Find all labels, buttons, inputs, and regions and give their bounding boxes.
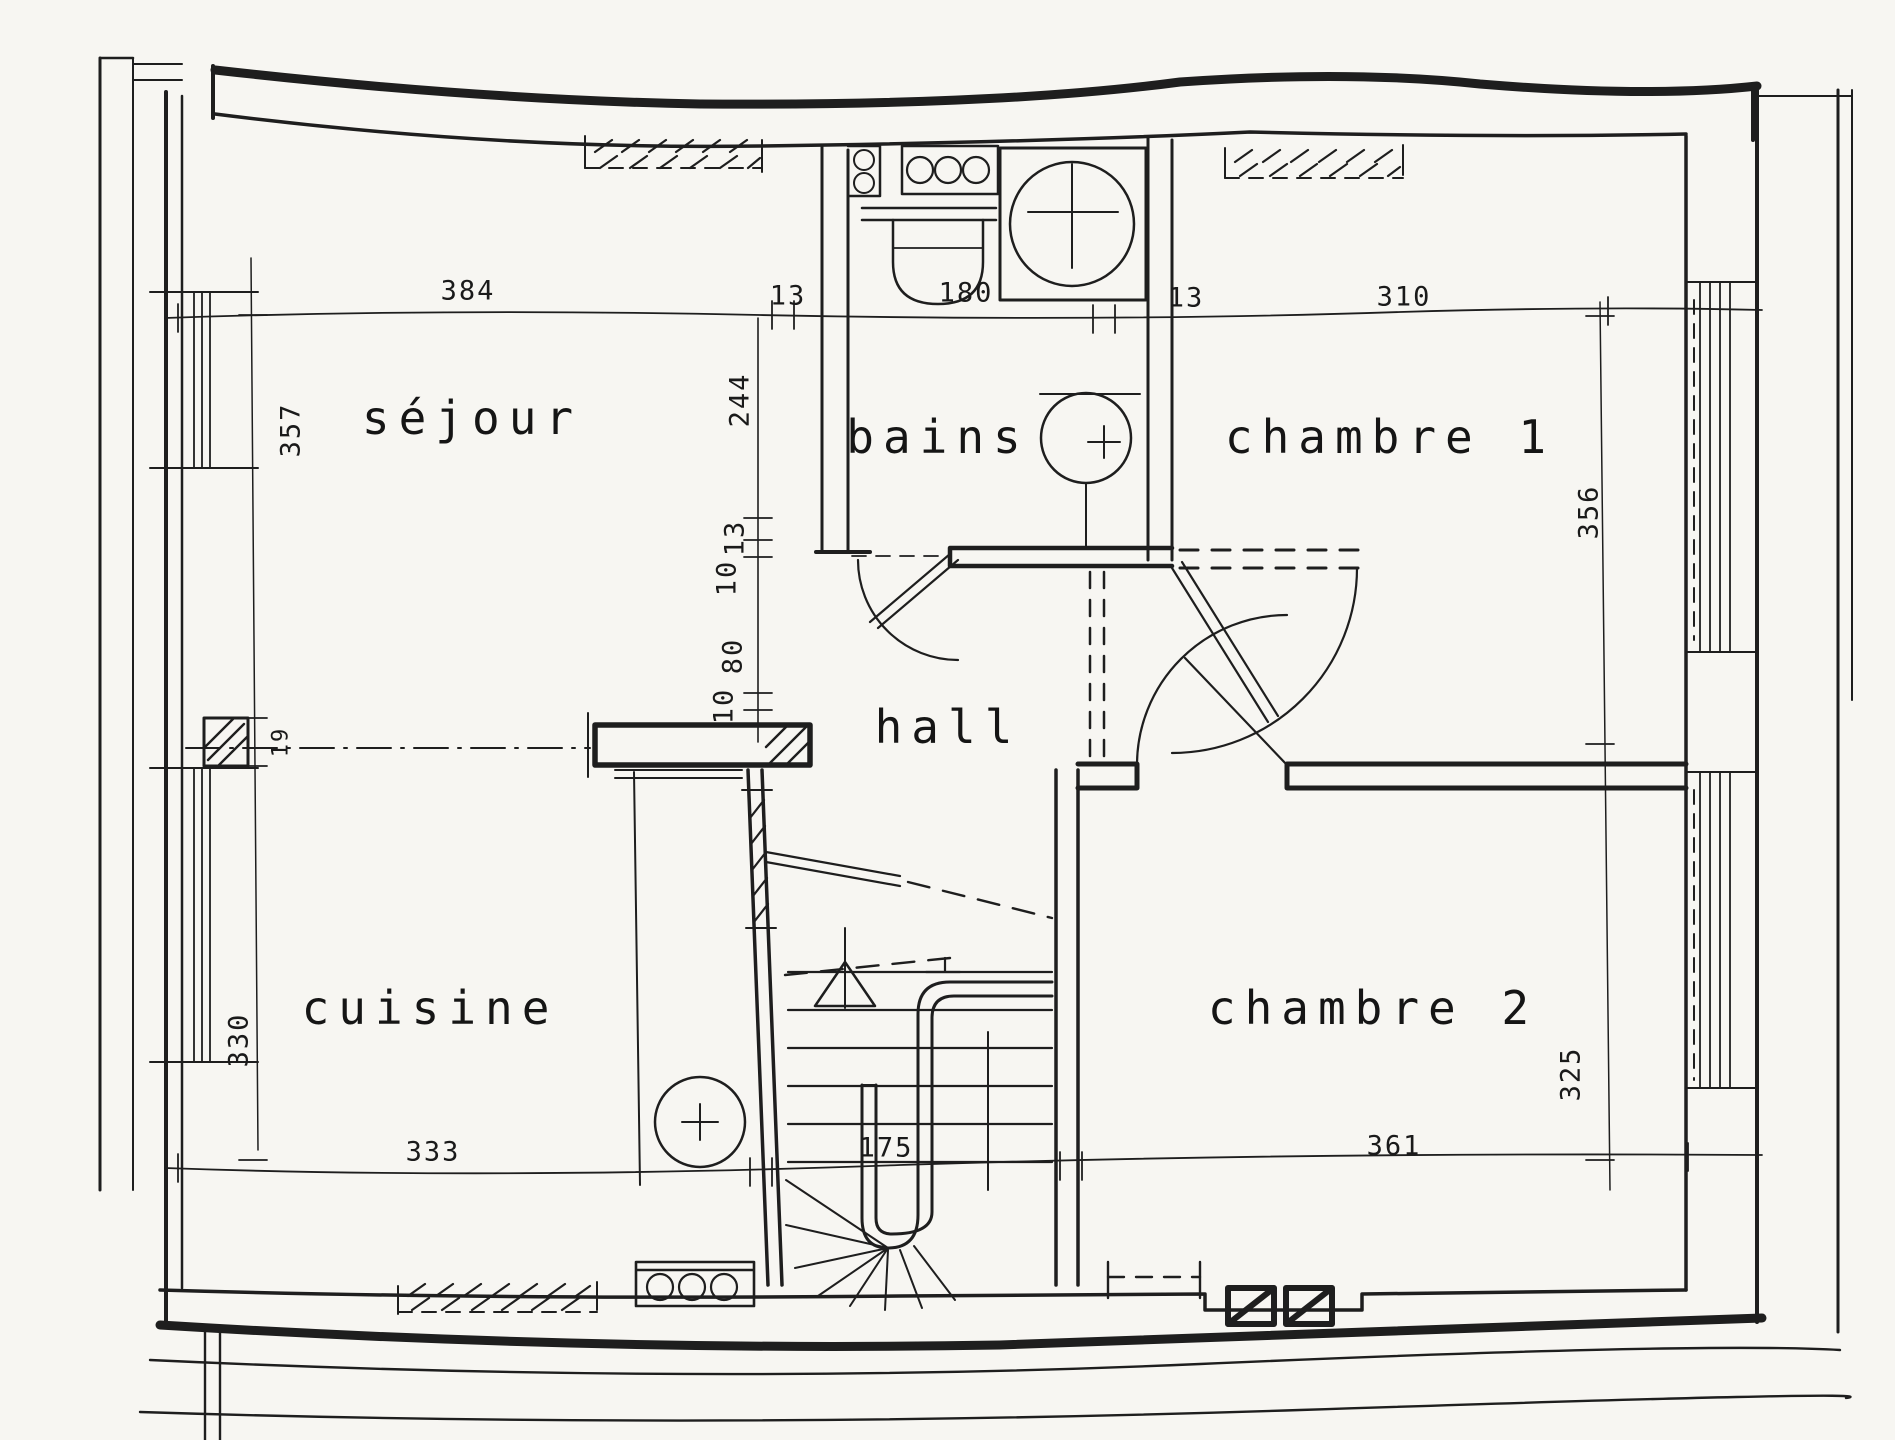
- dim-label-13-mid: 13: [720, 520, 751, 557]
- bains-door: [858, 554, 958, 660]
- dim-label-333-bottom: 333: [406, 1137, 461, 1168]
- floor-plan-scan: séjour bains chambre 1 hall cuisine cham…: [0, 0, 1895, 1440]
- winder-staircase: [742, 770, 1078, 1310]
- dim-label-13b-top: 13: [1168, 283, 1205, 314]
- kitchen-sink: [655, 1077, 745, 1167]
- dim-label-175-bottom: 175: [859, 1133, 914, 1164]
- hatched-pier: [204, 718, 248, 766]
- washbasin-counter: [902, 146, 998, 194]
- chambre1-door: [1172, 562, 1357, 753]
- dim-label-10a-mid: 10: [712, 560, 743, 597]
- room-label-cuisine: cuisine: [302, 981, 559, 1035]
- dim-label-180-top: 180: [939, 278, 994, 309]
- dim-label-10b-mid: 10: [709, 688, 740, 725]
- dim-label-244-mid: 244: [725, 373, 756, 428]
- room-label-hall: hall: [875, 700, 1022, 754]
- dim-label-325-right: 325: [1556, 1047, 1587, 1102]
- washbasin: [1040, 393, 1140, 546]
- dim-label-357-left: 357: [276, 403, 307, 458]
- room-label-chambre2: chambre 2: [1208, 981, 1538, 1035]
- dim-label-384-top: 384: [441, 276, 496, 307]
- dim-label-80-mid: 80: [718, 638, 749, 675]
- dim-label-330-left: 330: [224, 1013, 255, 1068]
- kitchen-fixtures: [636, 1077, 754, 1306]
- bathroom-fixtures: [848, 146, 1146, 546]
- dim-label-13a-top: 13: [770, 281, 807, 312]
- room-label-bains: bains: [846, 410, 1029, 464]
- room-label-chambre1: chambre 1: [1225, 410, 1555, 464]
- chambre2-door: [1137, 615, 1287, 765]
- soap-shelf: [848, 146, 880, 196]
- dim-label-310-top: 310: [1377, 282, 1432, 313]
- bathtub: [1000, 148, 1146, 300]
- room-label-sejour: séjour: [362, 391, 582, 445]
- dim-label-361-bottom: 361: [1367, 1131, 1422, 1162]
- hob-burners: [636, 1262, 754, 1306]
- dim-label-19-left: 19: [269, 727, 294, 758]
- dim-label-356-right: 356: [1574, 485, 1605, 540]
